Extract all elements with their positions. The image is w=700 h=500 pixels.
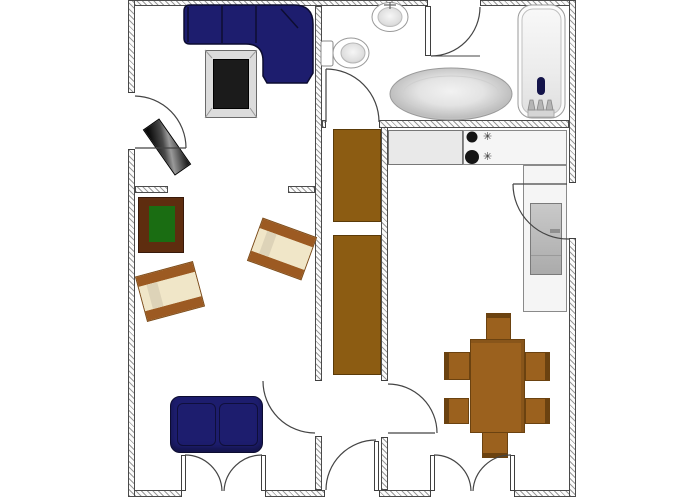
sofa-cushion: [219, 403, 258, 446]
french-kitchen-left-arc: [434, 455, 471, 491]
bathtub: [518, 5, 565, 118]
media-bench: [143, 118, 192, 175]
wall-top: [128, 0, 576, 6]
french-living-left-arc: [185, 455, 222, 491]
dining-chair-bottom: [482, 432, 508, 458]
bathroom-door-arc: [326, 69, 379, 122]
doorway-french-living: [181, 490, 266, 497]
door-leaf-french-living-right: [261, 455, 266, 491]
armchair-seat-shade: [259, 231, 277, 257]
wardrobe-lower: [333, 235, 381, 375]
two-seat-sofa: [170, 396, 263, 453]
refrigerator-handle: [550, 229, 560, 233]
dining-chair-left-1: [444, 352, 470, 380]
doorway-french-kitchen: [430, 490, 515, 497]
armchair-left: [135, 261, 205, 322]
tv-screen: [213, 59, 249, 109]
door-leaf-entrance: [374, 441, 379, 491]
dining-chair-right-1: [525, 352, 550, 381]
bath-partition-door-arc: [431, 7, 480, 56]
entrance-door-arc: [326, 440, 376, 490]
wardrobe-upper: [333, 129, 381, 222]
countertop-stove: [463, 130, 567, 165]
dining-chair-top: [486, 313, 511, 340]
burner-control-icon: ✳: [483, 151, 492, 162]
toilet: [321, 38, 369, 68]
doorway-top-wall: [427, 0, 481, 6]
kitchen-door-arc: [388, 384, 437, 433]
dining-table: [470, 339, 525, 433]
living-hallway-door-arc: [263, 381, 315, 433]
refrigerator-divider: [531, 255, 561, 256]
bathtub-faucet-base: [528, 110, 554, 117]
refrigerator: [530, 203, 562, 275]
doorway-balcony-kitchen: [569, 182, 576, 239]
door-leaf-french-kitchen-left: [430, 455, 435, 491]
armchair-seat-shade: [147, 282, 164, 309]
wall-right: [569, 0, 576, 497]
small-washbasin: [372, 2, 408, 32]
doorway-bathroom: [325, 120, 380, 128]
burner-control-icon: ✳: [483, 131, 492, 142]
tv: [205, 50, 257, 118]
door-leaf-bath-partition: [425, 6, 431, 56]
side-table: [138, 197, 184, 253]
wall-stub-left: [135, 186, 168, 193]
bathtub-faucet: [528, 100, 553, 110]
armchair-right: [247, 217, 317, 280]
large-washbasin: [390, 68, 512, 120]
door-leaf-french-living-left: [181, 455, 186, 491]
doorway-balcony-living: [128, 92, 135, 150]
wall-stub-right: [288, 186, 315, 193]
doorway-hallway-kitchen: [381, 380, 388, 438]
doorway-living-hallway: [315, 380, 322, 437]
countertop-left: [388, 130, 463, 165]
dining-chair-right-2: [525, 398, 550, 424]
dining-chair-left-2: [444, 398, 469, 424]
door-leaf-french-kitchen-right: [510, 455, 515, 491]
side-table-green-top: [149, 206, 175, 242]
french-kitchen-right-arc: [473, 455, 511, 491]
wall-left: [128, 0, 135, 497]
sofa-cushion: [177, 403, 216, 446]
bathtub-drain: [537, 77, 545, 95]
french-living-right-arc: [224, 455, 262, 491]
floor-plan: ✳ ✳: [0, 0, 700, 500]
doorway-entrance: [324, 490, 380, 497]
sofa-seams: [188, 6, 298, 43]
